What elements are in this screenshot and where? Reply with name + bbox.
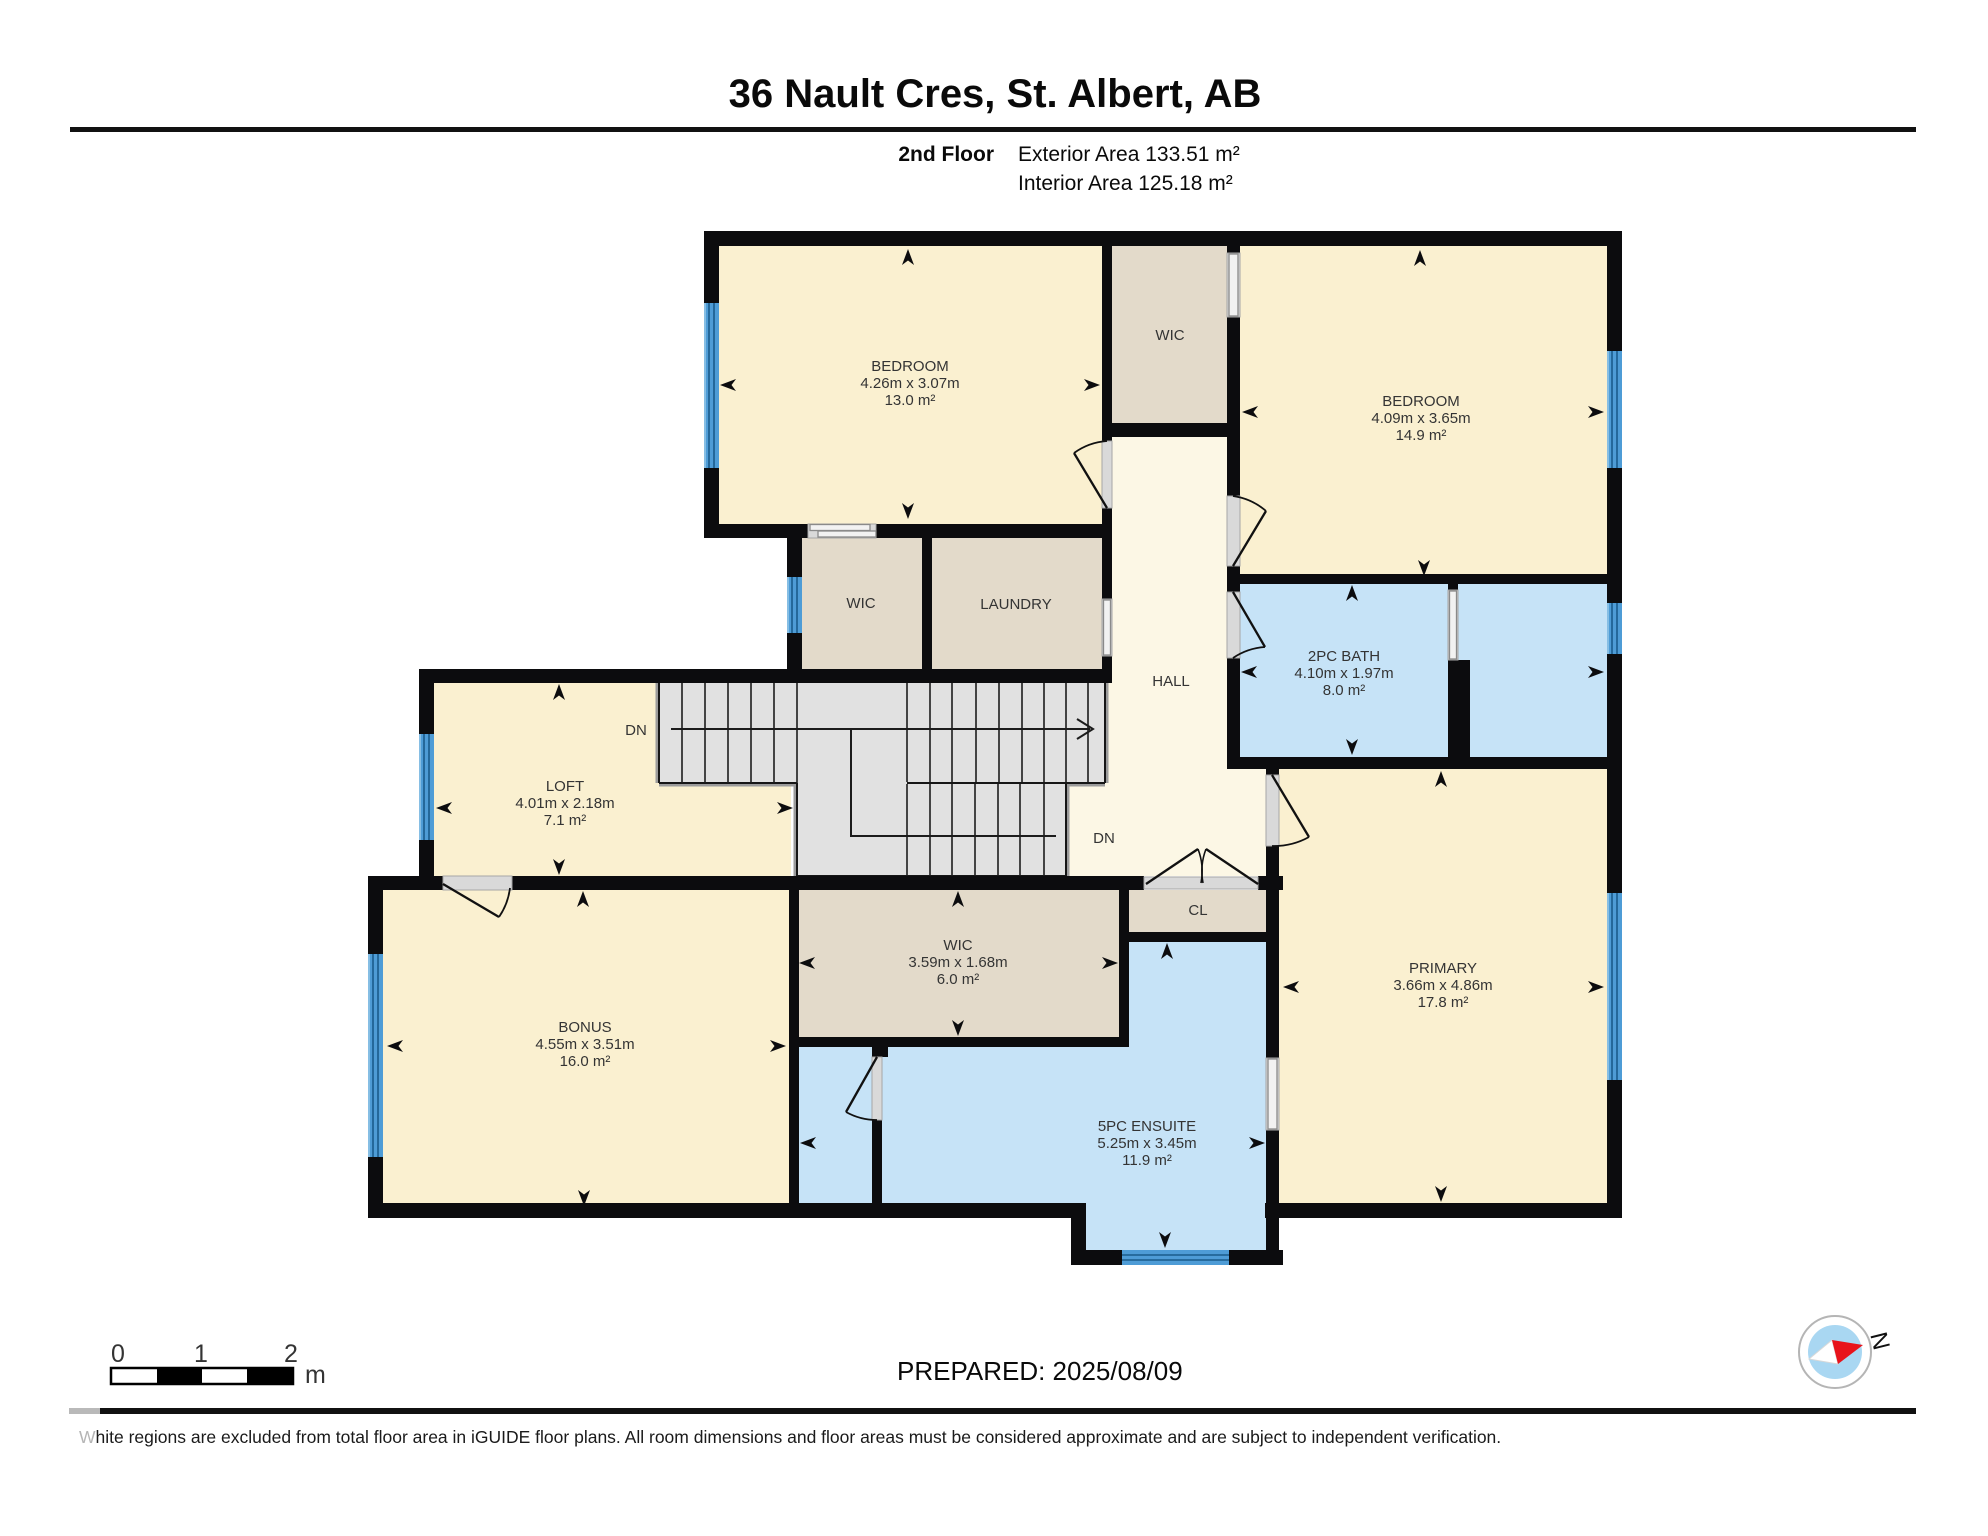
svg-text:WIC: WIC [846,595,875,612]
svg-text:2: 2 [284,1340,298,1368]
svg-text:LAUNDRY: LAUNDRY [980,596,1051,613]
svg-text:PRIMARY: PRIMARY [1409,960,1477,977]
svg-text:0: 0 [111,1340,125,1368]
svg-text:14.9 m²: 14.9 m² [1396,427,1447,444]
svg-text:DN: DN [625,722,647,739]
svg-text:BEDROOM: BEDROOM [871,358,949,375]
svg-text:LOFT: LOFT [546,778,584,795]
svg-text:3.59m x 1.68m: 3.59m x 1.68m [908,954,1007,971]
svg-text:4.26m x 3.07m: 4.26m x 3.07m [860,375,959,392]
svg-text:2PC BATH: 2PC BATH [1308,648,1380,665]
svg-text:36 Nault Cres, St. Albert, AB: 36 Nault Cres, St. Albert, AB [729,72,1262,116]
svg-text:1: 1 [194,1340,208,1368]
svg-text:Interior Area 125.18 m²: Interior Area 125.18 m² [1018,172,1233,195]
svg-text:2nd Floor: 2nd Floor [898,143,994,166]
svg-text:4.01m x 2.18m: 4.01m x 2.18m [515,795,614,812]
svg-text:White regions are excluded fro: White regions are excluded from total fl… [79,1427,1501,1447]
svg-text:PREPARED: 2025/08/09: PREPARED: 2025/08/09 [897,1356,1183,1386]
svg-text:4.10m x 1.97m: 4.10m x 1.97m [1294,665,1393,682]
svg-text:HALL: HALL [1152,673,1190,690]
svg-text:8.0 m²: 8.0 m² [1323,682,1366,699]
svg-text:BEDROOM: BEDROOM [1382,393,1460,410]
svg-text:3.66m x 4.86m: 3.66m x 4.86m [1393,977,1492,994]
svg-text:5PC ENSUITE: 5PC ENSUITE [1098,1118,1196,1135]
svg-text:WIC: WIC [943,937,972,954]
svg-text:CL: CL [1188,902,1207,919]
svg-text:BONUS: BONUS [558,1019,611,1036]
svg-text:5.25m x 3.45m: 5.25m x 3.45m [1097,1135,1196,1152]
svg-text:7.1 m²: 7.1 m² [544,812,587,829]
svg-text:m: m [305,1361,326,1389]
svg-text:4.09m x 3.65m: 4.09m x 3.65m [1371,410,1470,427]
svg-text:4.55m x 3.51m: 4.55m x 3.51m [535,1036,634,1053]
svg-text:Exterior Area 133.51 m²: Exterior Area 133.51 m² [1018,143,1240,166]
svg-text:WIC: WIC [1155,327,1184,344]
svg-text:N: N [1864,1329,1894,1352]
svg-text:16.0 m²: 16.0 m² [560,1053,611,1070]
svg-text:DN: DN [1093,830,1115,847]
svg-text:13.0 m²: 13.0 m² [885,392,936,409]
svg-text:11.9 m²: 11.9 m² [1122,1152,1172,1169]
svg-text:6.0 m²: 6.0 m² [937,971,980,988]
svg-text:17.8 m²: 17.8 m² [1418,994,1469,1011]
